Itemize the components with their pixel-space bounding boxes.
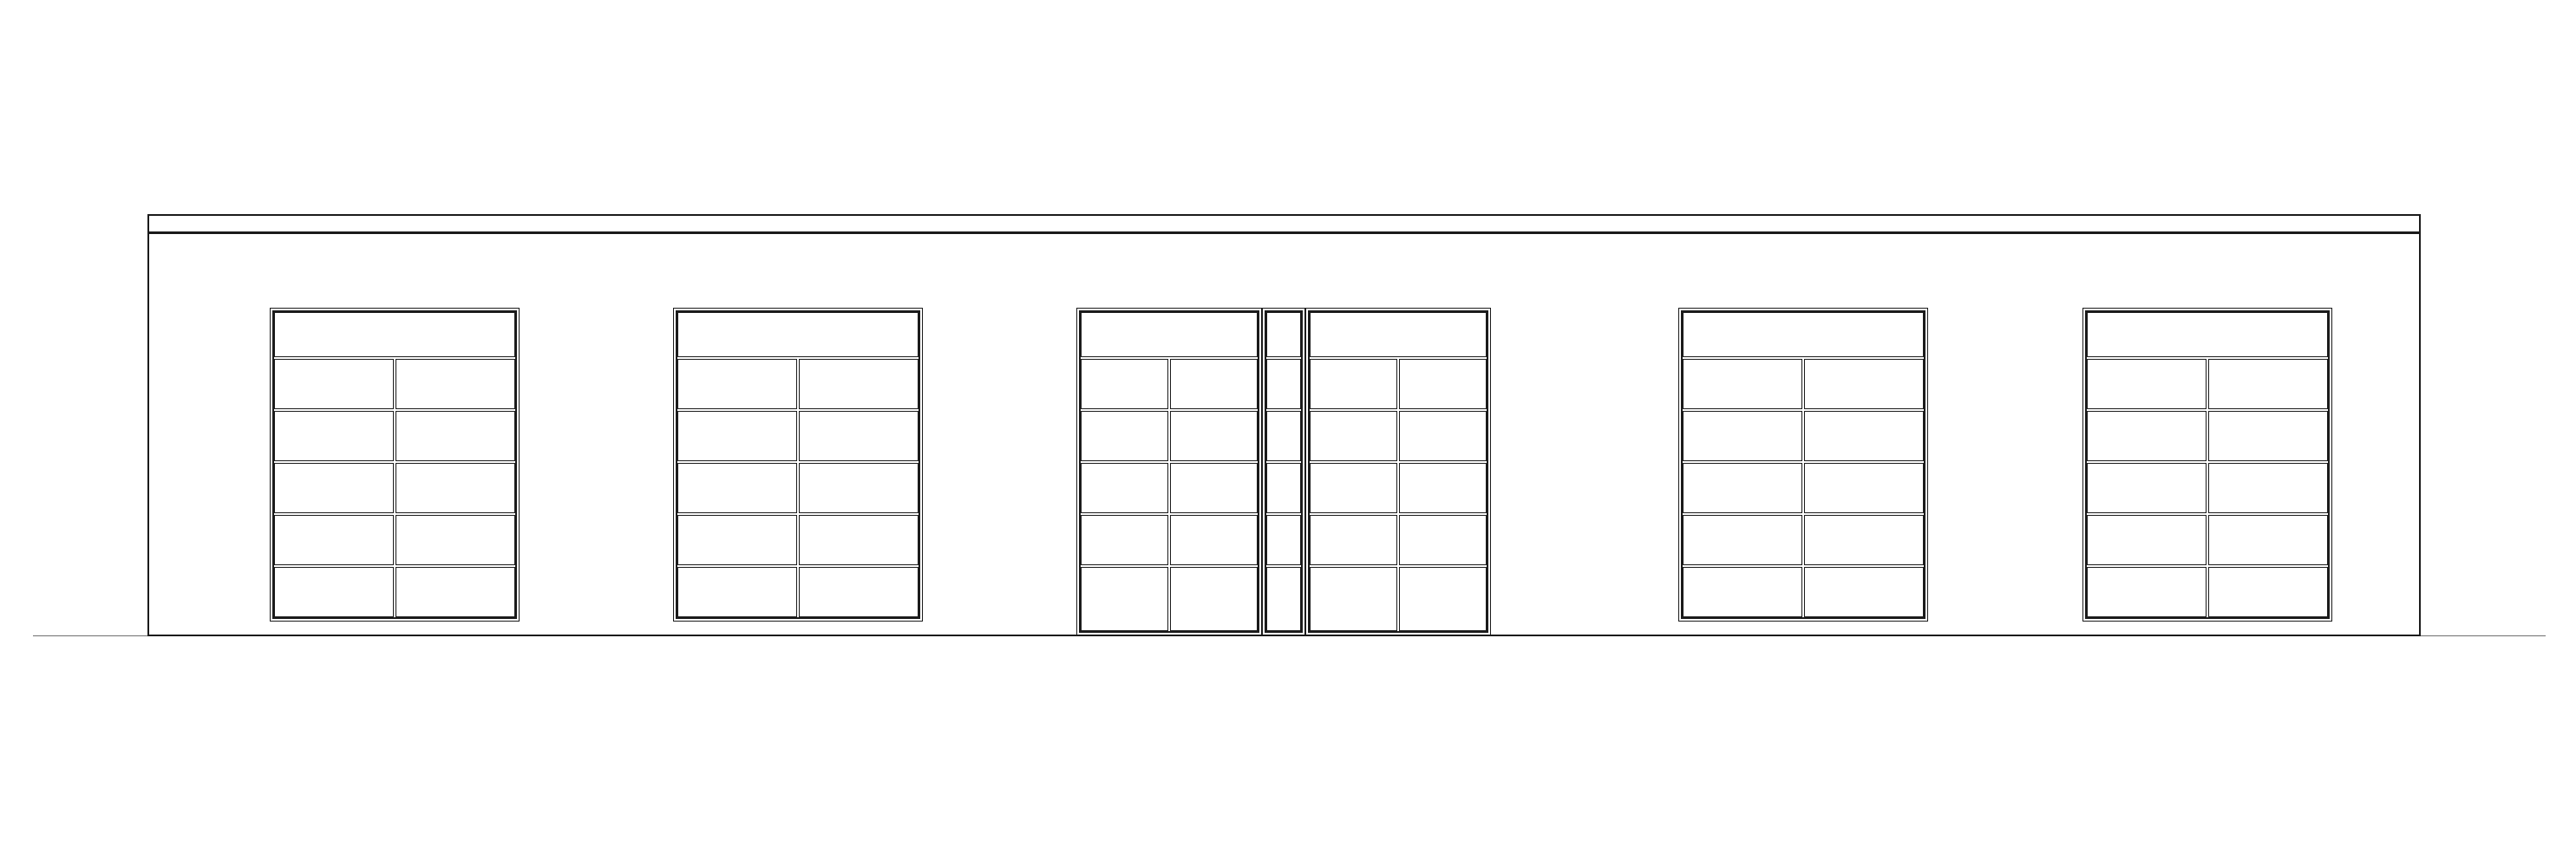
glass-pane — [1081, 411, 1168, 461]
glass-pane — [2087, 515, 2207, 565]
glass-pane — [274, 359, 394, 409]
glass-pane — [1266, 567, 1301, 631]
glass-pane — [1804, 567, 1924, 617]
glass-pane — [1081, 515, 1168, 565]
glass-pane — [799, 359, 919, 409]
glass-pane — [2087, 567, 2207, 617]
glass-pane — [396, 463, 515, 513]
glass-pane — [1170, 359, 1258, 409]
glass-pane — [1399, 463, 1487, 513]
glass-pane — [1266, 411, 1301, 461]
glass-pane — [1804, 359, 1924, 409]
transom-pane — [677, 312, 919, 357]
window-4-sash — [1681, 310, 1925, 619]
door-unit-right-sash — [1308, 310, 1488, 633]
glass-pane — [2087, 359, 2207, 409]
glass-pane — [799, 411, 919, 461]
glass-pane — [1266, 515, 1301, 565]
glass-pane — [1170, 411, 1258, 461]
glass-pane — [677, 359, 797, 409]
door-unit-left — [1076, 308, 1262, 635]
window-4 — [1678, 308, 1928, 622]
glass-pane — [2208, 411, 2328, 461]
glass-pane — [677, 463, 797, 513]
glass-pane — [2087, 411, 2207, 461]
glass-pane — [1081, 359, 1168, 409]
glass-pane — [274, 411, 394, 461]
glass-pane — [799, 515, 919, 565]
window-2-sash — [676, 310, 920, 619]
glass-pane — [396, 567, 515, 617]
glass-pane — [274, 515, 394, 565]
glass-pane — [799, 463, 919, 513]
glass-pane — [1081, 463, 1168, 513]
glass-pane — [677, 567, 797, 617]
window-1-sash — [272, 310, 517, 619]
glass-pane — [1170, 463, 1258, 513]
glass-pane — [1310, 463, 1397, 513]
glass-pane — [677, 411, 797, 461]
door-coupling-strip-sash — [1265, 310, 1303, 633]
glass-pane — [1399, 515, 1487, 565]
glass-pane — [2208, 515, 2328, 565]
glass-pane — [1310, 359, 1397, 409]
glass-pane — [2208, 567, 2328, 617]
glass-pane — [1804, 515, 1924, 565]
transom-pane — [2087, 312, 2328, 357]
glass-pane — [1683, 515, 1802, 565]
glass-pane — [799, 567, 919, 617]
door-coupling-strip — [1262, 308, 1305, 635]
transom-pane — [1266, 312, 1301, 357]
glass-pane — [2208, 359, 2328, 409]
glass-pane — [1266, 359, 1301, 409]
glass-pane — [1683, 463, 1802, 513]
glass-pane — [2208, 463, 2328, 513]
glass-pane — [1170, 515, 1258, 565]
transom-pane — [1081, 312, 1258, 357]
glass-pane — [1804, 411, 1924, 461]
glass-pane — [1310, 515, 1397, 565]
glass-pane — [274, 463, 394, 513]
glass-pane — [274, 567, 394, 617]
door-unit-right — [1305, 308, 1491, 635]
elevation-drawing — [0, 0, 2576, 853]
window-2 — [673, 308, 923, 622]
window-5 — [2082, 308, 2332, 622]
glass-pane — [2087, 463, 2207, 513]
glass-pane — [396, 411, 515, 461]
glass-pane — [1310, 567, 1397, 631]
glass-pane — [1683, 567, 1802, 617]
transom-pane — [1683, 312, 1924, 357]
glass-pane — [1683, 359, 1802, 409]
transom-pane — [1310, 312, 1487, 357]
glass-pane — [1399, 567, 1487, 631]
glass-pane — [1170, 567, 1258, 631]
glass-pane — [396, 515, 515, 565]
window-5-sash — [2085, 310, 2330, 619]
glass-pane — [677, 515, 797, 565]
glass-pane — [1399, 359, 1487, 409]
parapet-cap-line — [149, 231, 2419, 234]
glass-pane — [1399, 411, 1487, 461]
glass-pane — [1310, 411, 1397, 461]
glass-pane — [1081, 567, 1168, 631]
glass-pane — [396, 359, 515, 409]
window-1 — [270, 308, 520, 622]
glass-pane — [1804, 463, 1924, 513]
glass-pane — [1683, 411, 1802, 461]
transom-pane — [274, 312, 515, 357]
glass-pane — [1266, 463, 1301, 513]
door-unit-left-sash — [1079, 310, 1259, 633]
